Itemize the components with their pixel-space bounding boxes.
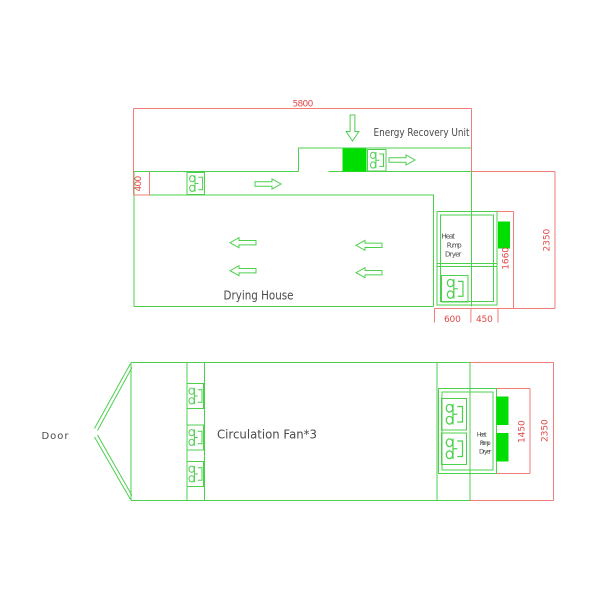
hpd-label-dryer: Dryer: [445, 250, 462, 258]
hpd-label-heat: Heat: [477, 430, 487, 438]
heat-pump-dryer-box-elevation: [439, 389, 497, 474]
hpd-fan-icon: [442, 433, 467, 465]
energy-recovery-unit-label: Energy Recovery Unit: [374, 127, 470, 139]
hpd-label-pump: Pump: [447, 241, 463, 249]
circulation-fan-icon: [187, 384, 204, 409]
hpd-label-heat: Heat: [442, 232, 456, 240]
dim-600: 600: [444, 315, 461, 325]
hpd-label-dryer: Dryer: [479, 447, 492, 455]
top-view-drawing: 5800 400 2350 1660 600 450 Energy Recove…: [134, 99, 556, 324]
duct-fan-icon: [187, 173, 205, 195]
airflow-arrows-top-view: [230, 115, 415, 278]
drying-house-diagram: 5800 400 2350 1660 600 450 Energy Recove…: [0, 0, 600, 600]
heat-pump-vent-block: [498, 222, 510, 249]
airflow-right-arrow: [255, 179, 281, 189]
airflow-left-arrow: [356, 268, 382, 278]
cad-drawing-canvas: 5800 400 2350 1660 600 450 Energy Recove…: [0, 0, 600, 600]
airflow-left-arrow: [356, 240, 382, 250]
airflow-left-arrow: [230, 266, 256, 276]
hpd-fan-icon: [442, 276, 469, 303]
energy-recovery-unit-block: [343, 149, 367, 172]
dim-2350-bottom: 2350: [541, 419, 551, 442]
hpd-label-pump: Pump: [480, 439, 491, 447]
dim-5800: 5800: [293, 99, 314, 109]
circulation-fan-icon: [187, 462, 204, 487]
circulation-fan-icon: [187, 425, 204, 450]
dim-1450: 1450: [518, 420, 528, 443]
drying-house-label: Drying House: [224, 288, 294, 303]
dim-400: 400: [134, 175, 144, 191]
exhaust-right-arrow: [389, 155, 415, 165]
dim-450: 450: [476, 315, 493, 325]
bottom-view-drawing: 1450 2350 Door Circulation Fan*3 Heat Pu…: [42, 363, 554, 501]
dim-1660: 1660: [502, 247, 512, 270]
dim-2350-top: 2350: [543, 228, 553, 251]
eru-fan-icon: [368, 150, 387, 172]
heat-pump-vent-block: [497, 397, 509, 426]
door-label: Door: [42, 431, 70, 442]
intake-down-arrow: [346, 115, 359, 141]
drying-house-outline: [134, 148, 472, 307]
circulation-fan-label: Circulation Fan*3: [217, 426, 317, 441]
door-leaves: [95, 364, 133, 500]
airflow-left-arrow: [230, 238, 256, 248]
hpd-fan-icon: [442, 399, 467, 431]
heat-pump-vent-block: [497, 433, 509, 462]
